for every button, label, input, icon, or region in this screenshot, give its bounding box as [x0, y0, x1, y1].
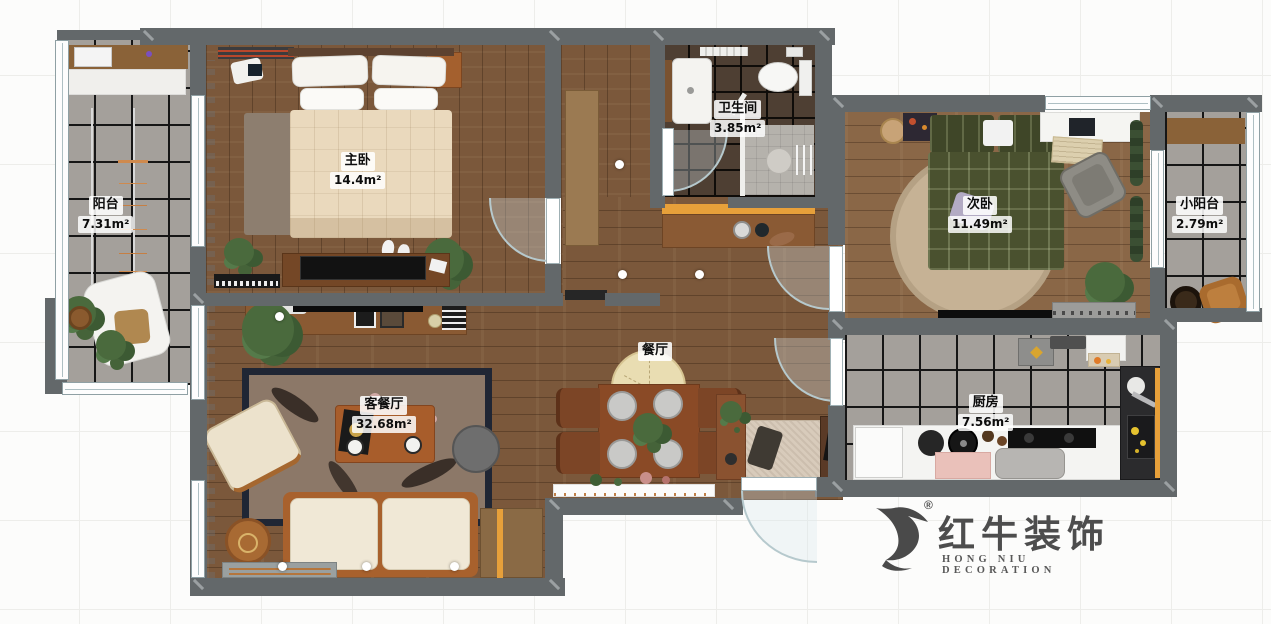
kitchen-sink-counter [1120, 366, 1160, 480]
room-name: 次卧 [963, 196, 997, 215]
console-table [716, 394, 746, 480]
wall [545, 498, 742, 515]
balcony-counter-item [146, 51, 152, 57]
wall [545, 45, 561, 198]
room-area: 2.79m² [1172, 216, 1227, 233]
balcony-window [55, 40, 69, 380]
downlight [362, 562, 371, 571]
piano-keyboard [214, 274, 280, 288]
vase [725, 453, 737, 465]
entry-door-leaf [741, 477, 817, 491]
downlight [450, 562, 459, 571]
console-plant [720, 401, 742, 423]
white-pillow [983, 120, 1013, 146]
downlight [695, 270, 704, 279]
hanging-clothes [118, 160, 148, 163]
registered-mark: ® [924, 498, 933, 512]
room-label-living-dining: 客餐厅 32.68m² [352, 396, 416, 433]
laptop [1069, 118, 1095, 136]
bathroom-shelf [700, 47, 748, 56]
tall-plant [1130, 196, 1143, 262]
room-name: 阳台 [89, 196, 123, 215]
cooktop [1008, 428, 1096, 448]
downlight [618, 270, 627, 279]
photo-frame [354, 310, 376, 328]
range-hood [1050, 336, 1086, 349]
kitchen-door-leaf [830, 338, 843, 406]
burners [1024, 433, 1034, 443]
toilet-tank [799, 60, 812, 96]
closet-cabinet [565, 90, 599, 246]
fruit [1094, 357, 1101, 364]
room-area: 32.68m² [352, 416, 416, 433]
wall [140, 28, 835, 45]
small-balcony-window [1246, 112, 1260, 312]
cutting-board [1088, 353, 1120, 367]
round-wood-table [225, 518, 271, 564]
downlight [275, 312, 284, 321]
room-label-small-balcony: 小阳台 2.79m² [1172, 196, 1227, 233]
room-area: 7.31m² [78, 216, 133, 233]
entry-door-swing [741, 491, 817, 563]
small-flowers [640, 472, 652, 484]
threshold [565, 290, 607, 300]
balcony-plant [96, 330, 126, 360]
room-area: 14.4m² [330, 172, 385, 189]
toilet [758, 62, 798, 92]
living-room-window [191, 305, 205, 400]
balcony-white-shelf [62, 69, 186, 95]
living-room-window [191, 480, 205, 578]
towel-rack [796, 145, 816, 175]
wall [545, 264, 561, 293]
fridge [855, 427, 903, 478]
room-label-kitchen: 厨房 7.56m² [958, 394, 1013, 431]
round-side-table [452, 425, 500, 473]
pillow [371, 55, 446, 88]
room-label-dining: 餐厅 [638, 342, 672, 361]
master-tv [300, 256, 426, 280]
room-name: 厨房 [969, 394, 1003, 413]
dish-rack-row [553, 484, 715, 497]
sink-basin [1127, 415, 1155, 459]
chair-seat [1070, 162, 1116, 208]
lemons [1131, 427, 1139, 435]
sofa-cushion [290, 498, 378, 570]
gold-ring-decor [238, 533, 258, 553]
wall [190, 293, 563, 306]
wall [828, 405, 845, 482]
room-name: 餐厅 [638, 342, 672, 361]
room-name: 客餐厅 [360, 396, 407, 415]
master-door-leaf [546, 198, 560, 264]
balcony-bottom-window [62, 382, 188, 395]
cabinet-accent [497, 509, 503, 579]
cup [346, 438, 364, 456]
curtain [207, 60, 215, 285]
bathroom-sink [672, 58, 712, 124]
living-room-plant [242, 302, 294, 356]
room-area: 3.85m² [710, 120, 765, 137]
faucet [1131, 391, 1156, 408]
master-balcony-slider [191, 95, 205, 247]
table-centerpiece-plant [633, 413, 663, 443]
downlight [615, 160, 624, 169]
dining-chair [556, 432, 600, 474]
piano-keys [216, 281, 278, 286]
downlight [278, 562, 287, 571]
second-bedroom-door-leaf [829, 246, 843, 312]
wall [835, 95, 1045, 112]
shoe-cabinet [662, 214, 815, 248]
bedroom-plant [1085, 262, 1125, 302]
bathroom-door-leaf [662, 128, 674, 196]
mat-decor [909, 118, 916, 125]
room-label-second-bedroom: 次卧 11.49m² [948, 196, 1012, 233]
balcony-flower-pot [68, 306, 92, 330]
duvet-fold [290, 218, 452, 238]
small-potted-plants [590, 474, 602, 486]
washing-machine [74, 47, 112, 67]
wall [828, 95, 845, 245]
shower-drain [766, 148, 792, 174]
room-name: 主卧 [341, 152, 375, 171]
pot-lid-knob [960, 440, 967, 447]
brand-logo: ® 红牛装饰 HONG NIU DECORATION [872, 498, 1132, 590]
tall-plant [1130, 120, 1143, 186]
plate [653, 389, 683, 419]
room-name: 小阳台 [1176, 196, 1223, 215]
room-area: 11.49m² [948, 216, 1012, 233]
wall [605, 293, 660, 306]
wall [650, 197, 664, 208]
room-label-balcony: 阳台 7.31m² [78, 196, 133, 233]
small-appliance [1018, 338, 1054, 366]
sofa-cushion [382, 498, 470, 570]
wall [843, 480, 1177, 497]
small-balcony-slider [1151, 150, 1164, 268]
pillow [300, 88, 364, 110]
faucet [687, 87, 694, 94]
mugs [982, 430, 994, 442]
laptop [248, 64, 262, 76]
wall [190, 578, 565, 596]
cutting-board-pink [935, 452, 991, 479]
room-label-master-bedroom: 主卧 14.4m² [330, 152, 385, 189]
bed-headboard [288, 48, 454, 56]
speaker [442, 306, 466, 330]
floor-plan-canvas: 阳台 7.31m² 主卧 14.4m² 卫生间 3.85m² 次卧 11.49m… [0, 0, 1271, 624]
photo-frame [380, 310, 404, 328]
wall [1150, 112, 1165, 150]
wall [57, 30, 149, 40]
second-bedroom-window [1045, 96, 1151, 110]
side-cabinet [480, 508, 543, 578]
appliance-decor [1030, 346, 1043, 359]
decor-bowl [733, 221, 751, 239]
bedroom-plant [224, 238, 254, 266]
plate [653, 439, 683, 469]
wall [1150, 95, 1262, 112]
room-name: 卫生间 [714, 100, 761, 119]
pillow [291, 55, 368, 88]
bowl [428, 314, 442, 328]
bull-icon [872, 504, 934, 576]
logo-english-name: HONG NIU DECORATION [942, 554, 1132, 576]
wall [1160, 318, 1177, 493]
room-label-bathroom: 卫生间 3.85m² [710, 100, 765, 137]
small-balcony-shelf [1167, 118, 1245, 144]
bathroom-cabinet-item [786, 47, 803, 57]
room-area: 7.56m² [958, 414, 1013, 431]
cup [404, 436, 422, 454]
dining-table [598, 384, 700, 478]
dining-chair [556, 388, 600, 428]
plate [607, 439, 637, 469]
large-pot [995, 448, 1065, 479]
wall [828, 318, 1177, 335]
pillow [374, 88, 438, 110]
plate [607, 391, 637, 421]
logo-chinese-name: 红牛装饰 [938, 504, 1110, 558]
decor-bowl [755, 223, 769, 237]
